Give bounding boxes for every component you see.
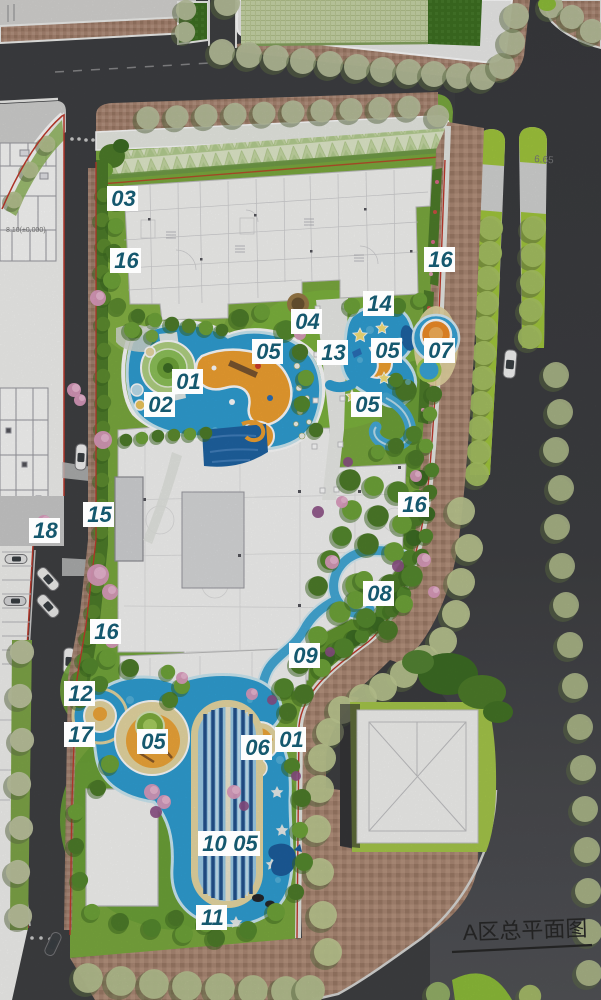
svg-text:02: 02 xyxy=(148,392,173,417)
svg-text:05: 05 xyxy=(141,729,166,754)
svg-text:12: 12 xyxy=(68,681,93,706)
svg-text:15: 15 xyxy=(87,502,112,527)
svg-text:16: 16 xyxy=(114,248,139,273)
svg-text:05: 05 xyxy=(375,338,400,363)
svg-text:01: 01 xyxy=(279,727,303,752)
svg-text:09: 09 xyxy=(293,643,318,668)
svg-text:16: 16 xyxy=(402,492,427,517)
svg-text:05: 05 xyxy=(355,392,380,417)
svg-text:17: 17 xyxy=(68,722,94,747)
svg-text:16: 16 xyxy=(428,247,453,272)
svg-text:06: 06 xyxy=(245,735,270,760)
svg-text:14: 14 xyxy=(367,291,391,316)
svg-text:07: 07 xyxy=(428,338,454,363)
svg-text:05: 05 xyxy=(256,339,281,364)
svg-text:05: 05 xyxy=(233,831,258,856)
svg-text:10: 10 xyxy=(202,831,227,856)
svg-text:11: 11 xyxy=(201,905,224,930)
svg-text:A区总平面图: A区总平面图 xyxy=(462,916,587,945)
svg-text:08: 08 xyxy=(367,581,392,606)
svg-text:18: 18 xyxy=(33,518,58,543)
svg-text:01: 01 xyxy=(176,369,200,394)
svg-text:13: 13 xyxy=(321,340,345,365)
svg-text:03: 03 xyxy=(111,186,135,211)
svg-text:04: 04 xyxy=(295,309,319,334)
svg-text:16: 16 xyxy=(94,619,119,644)
